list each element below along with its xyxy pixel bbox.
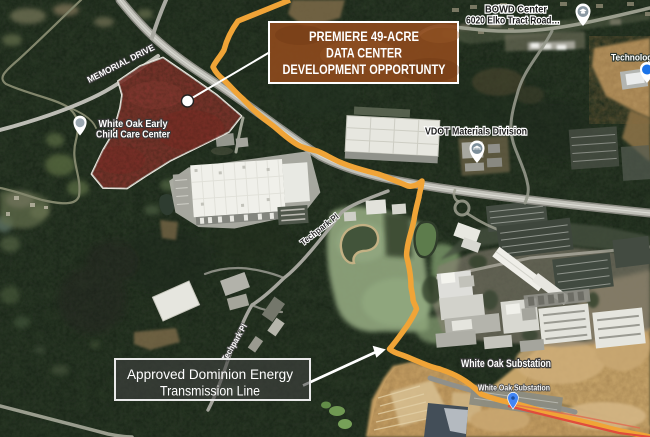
svg-text:6020 Elko Tract Road…: 6020 Elko Tract Road… [466,16,560,27]
svg-text:Child Care Center: Child Care Center [96,129,170,141]
svg-text:BOWD Center: BOWD Center [485,5,547,16]
svg-text:VDOT Materials Division: VDOT Materials Division [425,126,527,138]
svg-text:Approved Dominion Energy: Approved Dominion Energy [127,366,293,382]
svg-text:Transmission Line: Transmission Line [160,383,260,399]
svg-text:Technology: Technology [611,53,650,64]
svg-text:DEVELOPMENT OPPORTUNTY: DEVELOPMENT OPPORTUNTY [283,62,446,77]
svg-text:White Oak Substation: White Oak Substation [461,358,551,370]
svg-text:White Oak Substation: White Oak Substation [478,383,550,393]
svg-text:PREMIERE 49-ACRE: PREMIERE 49-ACRE [309,29,419,44]
svg-text:DATA CENTER: DATA CENTER [326,46,402,61]
